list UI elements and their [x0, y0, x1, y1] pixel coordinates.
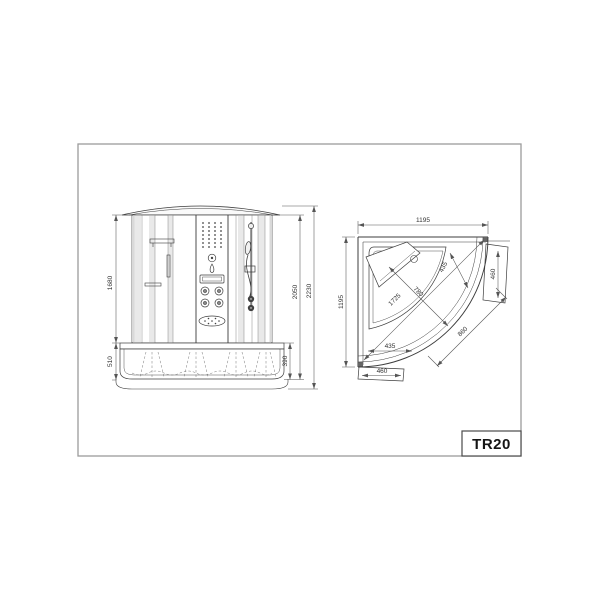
- speaker-knob-center: [211, 257, 213, 259]
- front-view: 1680 510 390 2050 2230: [107, 206, 318, 389]
- dim-label-1725: 1725: [387, 292, 402, 307]
- tub-apron: [120, 349, 284, 379]
- dim-line-435-corner: [450, 253, 468, 288]
- dim-label-460-side: 460: [490, 268, 497, 279]
- base-skirt: [116, 379, 288, 389]
- dim-label-2050: 2050: [292, 284, 299, 299]
- dim-label-510: 510: [107, 356, 114, 367]
- rail-mount: [248, 223, 253, 228]
- wall-end-cap-top: [483, 237, 488, 242]
- dim-label-width-1195: 1195: [416, 217, 430, 224]
- wall-end-cap-left: [358, 362, 363, 367]
- tub-rim: [120, 343, 284, 349]
- plan-basin: [366, 242, 446, 329]
- technical-drawing: TR20: [0, 0, 600, 600]
- corner-seat: [366, 242, 420, 287]
- dim-label-435-bottom: 435: [385, 343, 396, 350]
- title-block: TR20: [462, 431, 521, 456]
- ext-lines-860: [428, 288, 507, 367]
- dim-label-2230: 2230: [306, 283, 313, 298]
- dim-label-390: 390: [282, 355, 289, 366]
- plan-ext-lines: [342, 221, 488, 367]
- model-code-label: TR20: [472, 436, 511, 453]
- dim-label-depth-1195: 1195: [338, 295, 345, 309]
- plan-view: 1195 1195 1725 780 435 460 860 435 460: [338, 217, 510, 381]
- drawing-sheet: TR20: [0, 0, 600, 600]
- dim-label-860: 860: [457, 325, 470, 338]
- dim-label-1680: 1680: [107, 275, 114, 290]
- roof-canopy: [122, 206, 280, 215]
- dim-label-460-bottom: 460: [377, 368, 388, 375]
- plan-dimensions: 1195 1195 1725 780 435 460 860 435 460: [338, 217, 507, 376]
- tub-base: [116, 343, 288, 389]
